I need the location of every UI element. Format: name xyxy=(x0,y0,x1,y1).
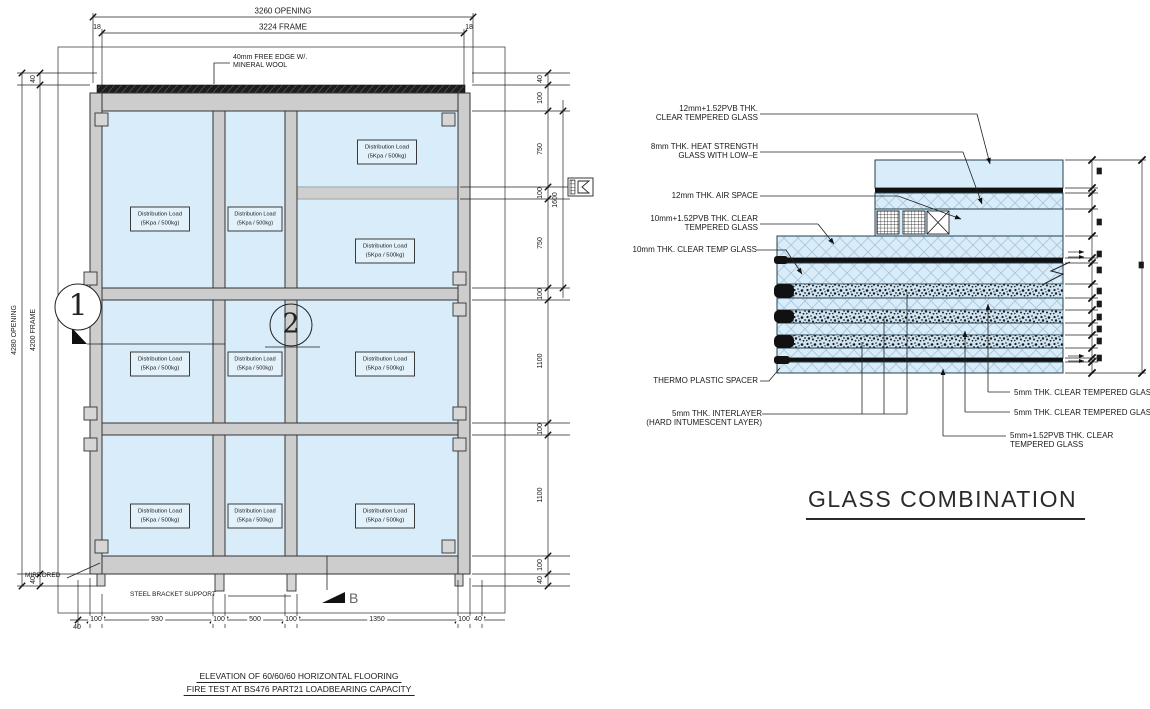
section-b-label: B xyxy=(349,590,358,607)
drawing-sheet: 3260 OPENING 3224 FRAME 18 18 4280 OPENI… xyxy=(0,0,1150,709)
mirrored-label: MIRRORED xyxy=(25,572,60,580)
intermediate-transom xyxy=(297,187,458,199)
elevation-glass-panels xyxy=(102,111,458,556)
load-label-box: Distribution Load(5Kpa / 500kg) xyxy=(355,504,415,529)
label-thermo-spacer: THERMO PLASTIC SPACER xyxy=(653,376,758,385)
dimension-text-marks xyxy=(1097,168,1144,361)
dim-bottom-4: 100 xyxy=(283,616,299,624)
dim-frame-top: 3224 FRAME xyxy=(259,22,307,31)
dim-right-2: 750 xyxy=(537,143,545,155)
dim-right-outer: 1600 xyxy=(552,192,560,208)
dim-right-6: 1100 xyxy=(537,353,545,368)
load-label-box: Distribution Load(5Kpa / 500kg) xyxy=(228,504,283,529)
dim-right-7: 100 xyxy=(537,423,545,435)
glass-combination-title: GLASS COMBINATION xyxy=(806,486,1085,520)
label-12mm-pvb-glass: 12mm+1.52PVB THK. CLEAR TEMPERED GLASS xyxy=(656,104,758,123)
spacer-grid-block xyxy=(903,211,925,234)
mineral-wool-strip xyxy=(97,85,465,93)
spacer-grid-block xyxy=(877,211,899,234)
dim-bottom-6: 100 xyxy=(456,616,472,624)
load-label-box: Distribution Load(5Kpa / 500kg) xyxy=(228,352,283,377)
callout-2-number: 2 xyxy=(282,309,299,340)
elevation-title-line1: ELEVATION OF 60/60/60 HORIZONTAL FLOORIN… xyxy=(196,671,401,681)
label-interlayer: 5mm THK. INTERLAYER (HARD INTUMESCENT LA… xyxy=(646,409,762,428)
dim-right-10: 40 xyxy=(537,576,545,584)
label-10mm-temp-glass: 10mm THK. CLEAR TEMP GLASS xyxy=(633,245,757,254)
dim-bottom-0: 100 xyxy=(88,616,104,624)
steel-bracket-label: STEEL BRACKET SUPPORT xyxy=(130,591,216,599)
dim-bottom-1: 930 xyxy=(149,616,165,624)
dim-offset-right: 18 xyxy=(465,24,473,32)
load-label-box: Distribution Load(5Kpa / 500kg) xyxy=(130,352,190,377)
dim-right-4: 750 xyxy=(537,237,545,249)
load-label-box: Distribution Load(5Kpa / 500kg) xyxy=(130,504,190,529)
free-edge-note: 40mm FREE EDGE W/. MINERAL WOOL xyxy=(233,54,307,71)
load-label-box: Distribution Load(5Kpa / 500kg) xyxy=(355,352,415,377)
dim-right-3: 100 xyxy=(537,187,545,199)
load-label-box: Distribution Load(5Kpa / 500kg) xyxy=(355,239,415,264)
intumescent-interlayer xyxy=(793,335,1063,348)
dim-offset-left: 18 xyxy=(93,24,101,32)
load-label-box: Distribution Load(5Kpa / 500kg) xyxy=(130,207,190,232)
dim-right-1: 100 xyxy=(537,92,545,104)
intumescent-interlayer xyxy=(793,310,1063,323)
dim-bottom-3: 500 xyxy=(247,616,263,624)
dim-right-9: 100 xyxy=(537,559,545,571)
label-5mm-glass-a: 5mm THK. CLEAR TEMPERED GLASS xyxy=(1014,388,1150,397)
label-5mm-pvb-glass: 5mm+1.52PVB THK. CLEAR TEMPERED GLASS xyxy=(1010,431,1113,450)
marker-b-flag xyxy=(322,592,345,603)
dim-gap-top: 40 xyxy=(30,75,38,83)
glass-stack xyxy=(774,160,1070,373)
detail-dimensions xyxy=(1065,156,1146,376)
label-8mm-heat-strength: 8mm THK. HEAT STRENGTH GLASS WITH LOW–E xyxy=(651,142,758,161)
dim-frame-left: 4200 FRAME xyxy=(30,309,38,351)
section-marker-icon xyxy=(568,178,593,196)
label-5mm-glass-b: 5mm THK. CLEAR TEMPERED GLASS xyxy=(1014,408,1150,417)
dim-opening-left: 4280 OPENING xyxy=(11,305,19,355)
dim-right-8: 1100 xyxy=(537,487,545,502)
dim-right-5: 100 xyxy=(537,288,545,300)
dim-bottom-left: 40 xyxy=(73,624,81,632)
dim-bottom-right: 40 xyxy=(472,616,484,624)
load-label-box: Distribution Load(5Kpa / 500kg) xyxy=(357,140,417,165)
intumescent-interlayer xyxy=(793,284,1063,298)
dim-bottom-2: 100 xyxy=(211,616,227,624)
elevation-title-line2: FIRE TEST AT BS476 PART21 LOADBEARING CA… xyxy=(184,684,415,694)
dim-bottom-5: 1350 xyxy=(367,616,387,624)
label-air-space: 12mm THK. AIR SPACE xyxy=(672,191,758,200)
load-label-box: Distribution Load(5Kpa / 500kg) xyxy=(228,207,283,232)
label-10mm-pvb-glass: 10mm+1.52PVB THK. CLEAR TEMPERED GLASS xyxy=(650,214,758,233)
callout-1-number: 1 xyxy=(68,289,87,324)
dim-opening-top: 3260 OPENING xyxy=(255,6,312,15)
dim-right-0: 40 xyxy=(537,75,545,83)
